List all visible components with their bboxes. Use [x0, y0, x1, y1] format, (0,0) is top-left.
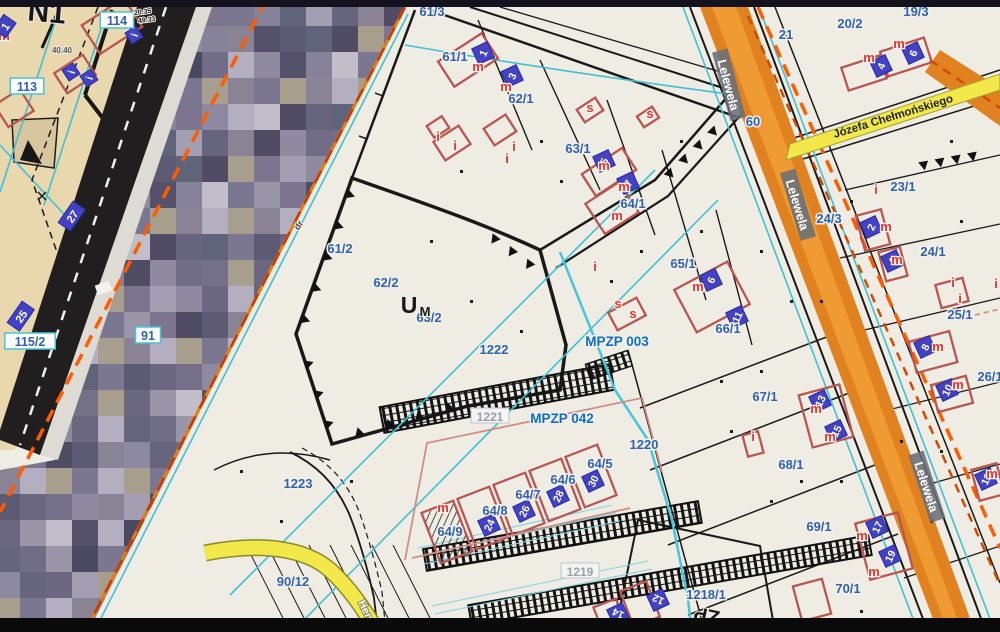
building-letter-i: i — [874, 182, 878, 197]
mosaic-cell — [280, 104, 306, 130]
parcel-label: 26/1 — [977, 369, 1000, 384]
mosaic-cell — [202, 156, 228, 182]
parcel-label: 1220 — [630, 437, 659, 452]
speck — [860, 610, 863, 613]
mosaic-cell — [98, 546, 124, 572]
parcel-label: 61/2 — [327, 241, 352, 256]
mosaic-cell — [202, 286, 228, 312]
parcel-label: 69/1 — [806, 519, 831, 534]
mosaic-cell — [228, 208, 254, 234]
building-letter-i: i — [958, 291, 962, 306]
mosaic-cell — [280, 52, 306, 78]
building-letter-m: m — [692, 279, 704, 294]
mosaic-cell — [202, 260, 228, 286]
parcel-label: 64/9 — [437, 524, 462, 539]
speck — [770, 500, 773, 503]
building-letter-m: m — [932, 339, 944, 354]
mosaic-cell — [280, 130, 306, 156]
building-letter-m: m — [893, 36, 905, 51]
speck — [430, 240, 433, 243]
parcel-label: 62/1 — [508, 91, 533, 106]
building-letter-i: i — [436, 129, 440, 144]
parcel-plate-number: 1221 — [477, 410, 504, 424]
speck — [240, 470, 243, 473]
speck — [800, 480, 803, 483]
building-letter-m: m — [598, 158, 610, 173]
mosaic-cell — [228, 104, 254, 130]
mosaic-cell — [46, 520, 72, 546]
parcel-label: 64/7 — [515, 487, 540, 502]
mosaic-cell — [46, 546, 72, 572]
parcel-label: 23/1 — [890, 179, 915, 194]
speck — [730, 430, 733, 433]
speck — [640, 250, 643, 253]
speck — [520, 330, 523, 333]
mosaic-cell — [202, 26, 228, 52]
speck — [350, 480, 353, 483]
parcel-label: 64/6 — [550, 472, 575, 487]
mosaic-cell — [20, 572, 46, 598]
speck — [470, 300, 473, 303]
speck — [820, 300, 823, 303]
building-letter-m: m — [863, 50, 875, 65]
mosaic-cell — [228, 260, 254, 286]
mosaic-cell — [98, 468, 124, 494]
mosaic-cell — [0, 520, 20, 546]
building-letter-i: i — [505, 151, 509, 166]
speck — [950, 140, 953, 143]
speck — [960, 220, 963, 223]
parcel-label: 21 — [779, 27, 793, 42]
parcel-label: 64/1 — [620, 196, 645, 211]
parcel-label: 24/1 — [920, 244, 945, 259]
mosaic-cell — [98, 494, 124, 520]
building-letter-i: i — [951, 275, 955, 290]
mosaic-cell — [150, 390, 176, 416]
parcel-plate-white: 114 — [100, 12, 134, 28]
mosaic-cell — [254, 78, 280, 104]
parcel-label: 24/3 — [816, 211, 841, 226]
speck — [940, 450, 943, 453]
mosaic-cell — [72, 546, 98, 572]
mosaic-cell — [72, 442, 98, 468]
mosaic-cell — [254, 52, 280, 78]
building-letter-s: s — [646, 106, 653, 121]
mosaic-cell — [228, 234, 254, 260]
parcel-label: 70/1 — [835, 581, 860, 596]
mosaic-cell — [254, 130, 280, 156]
parcel-label: 66/1 — [715, 321, 740, 336]
building-letter-m: m — [824, 429, 836, 444]
building-letter-m: m — [952, 377, 964, 392]
bottom-bar — [0, 618, 1000, 632]
mosaic-cell — [124, 468, 150, 494]
parcel-label: 1222 — [480, 342, 509, 357]
speck — [720, 380, 723, 383]
building-letter-s: s — [614, 296, 621, 311]
parcel-label: 1218/1 — [686, 587, 726, 602]
parcel-plate-number: 115/2 — [15, 335, 46, 349]
mosaic-cell — [306, 130, 332, 156]
mosaic-cell — [280, 182, 306, 208]
speck — [790, 300, 793, 303]
mosaic-cell — [176, 104, 202, 130]
map-annotation: U — [401, 292, 418, 318]
mosaic-cell — [306, 26, 332, 52]
mosaic-cell — [176, 364, 202, 390]
building-letter-m: m — [986, 466, 998, 481]
mosaic-cell — [332, 26, 358, 52]
speck — [460, 170, 463, 173]
mosaic-cell — [176, 286, 202, 312]
parcel-plate-gray: 1219 — [561, 563, 599, 579]
parcel-label: 61/1 — [442, 49, 467, 64]
mosaic-cell — [176, 208, 202, 234]
parcel-label: 64/8 — [482, 503, 507, 518]
mosaic-cell — [254, 26, 280, 52]
speck — [680, 140, 683, 143]
mosaic-cell — [150, 416, 176, 442]
speck — [610, 280, 613, 283]
building-letter-i: i — [512, 139, 516, 154]
mosaic-cell — [72, 468, 98, 494]
parcel-plate-gray: 1221 — [471, 408, 509, 424]
parcel-label: 62/2 — [373, 275, 398, 290]
parcel-label: 63/1 — [565, 141, 590, 156]
mosaic-cell — [98, 442, 124, 468]
parcel-plate-white: 113 — [10, 78, 44, 94]
parcel-label: 1223 — [284, 476, 313, 491]
mosaic-cell — [98, 390, 124, 416]
mosaic-cell — [0, 546, 20, 572]
speck — [280, 520, 283, 523]
mosaic-cell — [150, 286, 176, 312]
parcel-label: 64/5 — [587, 456, 612, 471]
mosaic-cell — [202, 208, 228, 234]
mosaic-cell — [254, 104, 280, 130]
building-letter-m: m — [437, 500, 449, 515]
mosaic-cell — [124, 442, 150, 468]
mosaic-cell — [0, 572, 20, 598]
building-letter-i: i — [994, 276, 998, 291]
mosaic-cell — [150, 208, 176, 234]
parcel-label: 60 — [746, 114, 760, 129]
mosaic-cell — [280, 156, 306, 182]
parcel-plate-number: 91 — [141, 329, 155, 343]
mosaic-cell — [254, 208, 280, 234]
building-letter-i: i — [593, 259, 597, 274]
building-letter-m: m — [472, 59, 484, 74]
building-letter-m: m — [810, 401, 822, 416]
building-letter-m: m — [868, 564, 880, 579]
parcel-label: 20/2 — [837, 16, 862, 31]
mosaic-cell — [358, 26, 384, 52]
building-letter-i: i — [453, 138, 457, 153]
building-letter-m: m — [856, 528, 868, 543]
mosaic-cell — [98, 338, 124, 364]
parcel-plate-white: 91 — [136, 327, 161, 343]
building-letter-m: m — [880, 219, 892, 234]
mosaic-cell — [176, 234, 202, 260]
map-annotation: M — [420, 304, 431, 319]
speck — [560, 180, 563, 183]
parcel-label: 65/1 — [670, 256, 695, 271]
speck — [700, 230, 703, 233]
building-letter-m: m — [891, 252, 903, 267]
building-letter-s: s — [586, 100, 593, 115]
parcel-label: 67/1 — [752, 389, 777, 404]
mosaic-cell — [228, 130, 254, 156]
mosaic-cell — [202, 312, 228, 338]
map-viewport[interactable]: 135761164248101315171912302826241214iii … — [0, 0, 1000, 632]
mosaic-cell — [176, 260, 202, 286]
mosaic-cell — [72, 416, 98, 442]
mosaic-cell — [332, 52, 358, 78]
building-letter-m: m — [618, 179, 630, 194]
mosaic-cell — [72, 572, 98, 598]
speck — [840, 480, 843, 483]
parcel-plate-number: 114 — [107, 14, 127, 28]
building-letter-s: s — [629, 306, 636, 321]
mosaic-cell — [228, 182, 254, 208]
mosaic-cell — [150, 260, 176, 286]
mosaic-cell — [124, 286, 150, 312]
parcel-label: 90/12 — [277, 574, 310, 589]
mosaic-cell — [306, 104, 332, 130]
speck — [760, 370, 763, 373]
mosaic-cell — [176, 338, 202, 364]
mosaic-cell — [202, 182, 228, 208]
mosaic-cell — [176, 312, 202, 338]
mosaic-cell — [20, 494, 46, 520]
mosaic-cell — [46, 572, 72, 598]
parcel-plate-white: 115/2 — [5, 333, 56, 349]
mosaic-cell — [254, 182, 280, 208]
mosaic-cell — [306, 78, 332, 104]
mosaic-cell — [20, 520, 46, 546]
speck — [540, 140, 543, 143]
mosaic-cell — [98, 416, 124, 442]
speck — [850, 200, 853, 203]
mosaic-cell — [306, 52, 332, 78]
mosaic-cell — [202, 130, 228, 156]
mosaic-cell — [254, 156, 280, 182]
mpzp-plan-label: MPZP 003 — [585, 334, 649, 349]
map-canvas[interactable]: 135761164248101315171912302826241214iii … — [0, 0, 1000, 632]
mosaic-cell — [98, 364, 124, 390]
mosaic-cell — [280, 78, 306, 104]
mosaic-cell — [72, 494, 98, 520]
speck — [900, 440, 903, 443]
map-annotation: 40.40 — [52, 46, 73, 55]
mosaic-cell — [72, 520, 98, 546]
mosaic-cell — [124, 416, 150, 442]
mosaic-cell — [150, 364, 176, 390]
top-bar — [0, 0, 1000, 7]
mosaic-cell — [202, 234, 228, 260]
mosaic-cell — [150, 234, 176, 260]
mosaic-cell — [332, 78, 358, 104]
parcel-plate-number: 113 — [17, 80, 37, 94]
speck — [760, 250, 763, 253]
mosaic-cell — [228, 78, 254, 104]
mosaic-cell — [176, 182, 202, 208]
mosaic-cell — [124, 494, 150, 520]
mosaic-cell — [202, 52, 228, 78]
mosaic-cell — [20, 546, 46, 572]
parcel-label: 25/1 — [947, 307, 972, 322]
mosaic-cell — [124, 390, 150, 416]
parcel-plate-number: 1219 — [567, 565, 594, 579]
mosaic-cell — [20, 468, 46, 494]
mosaic-cell — [228, 156, 254, 182]
mosaic-cell — [46, 494, 72, 520]
parcel-label: 68/1 — [778, 457, 803, 472]
mpzp-plan-label: MPZP 042 — [530, 411, 594, 426]
mosaic-cell — [46, 468, 72, 494]
mosaic-cell — [98, 520, 124, 546]
mosaic-cell — [124, 364, 150, 390]
building-letter-i: i — [751, 429, 755, 444]
mosaic-cell — [280, 26, 306, 52]
